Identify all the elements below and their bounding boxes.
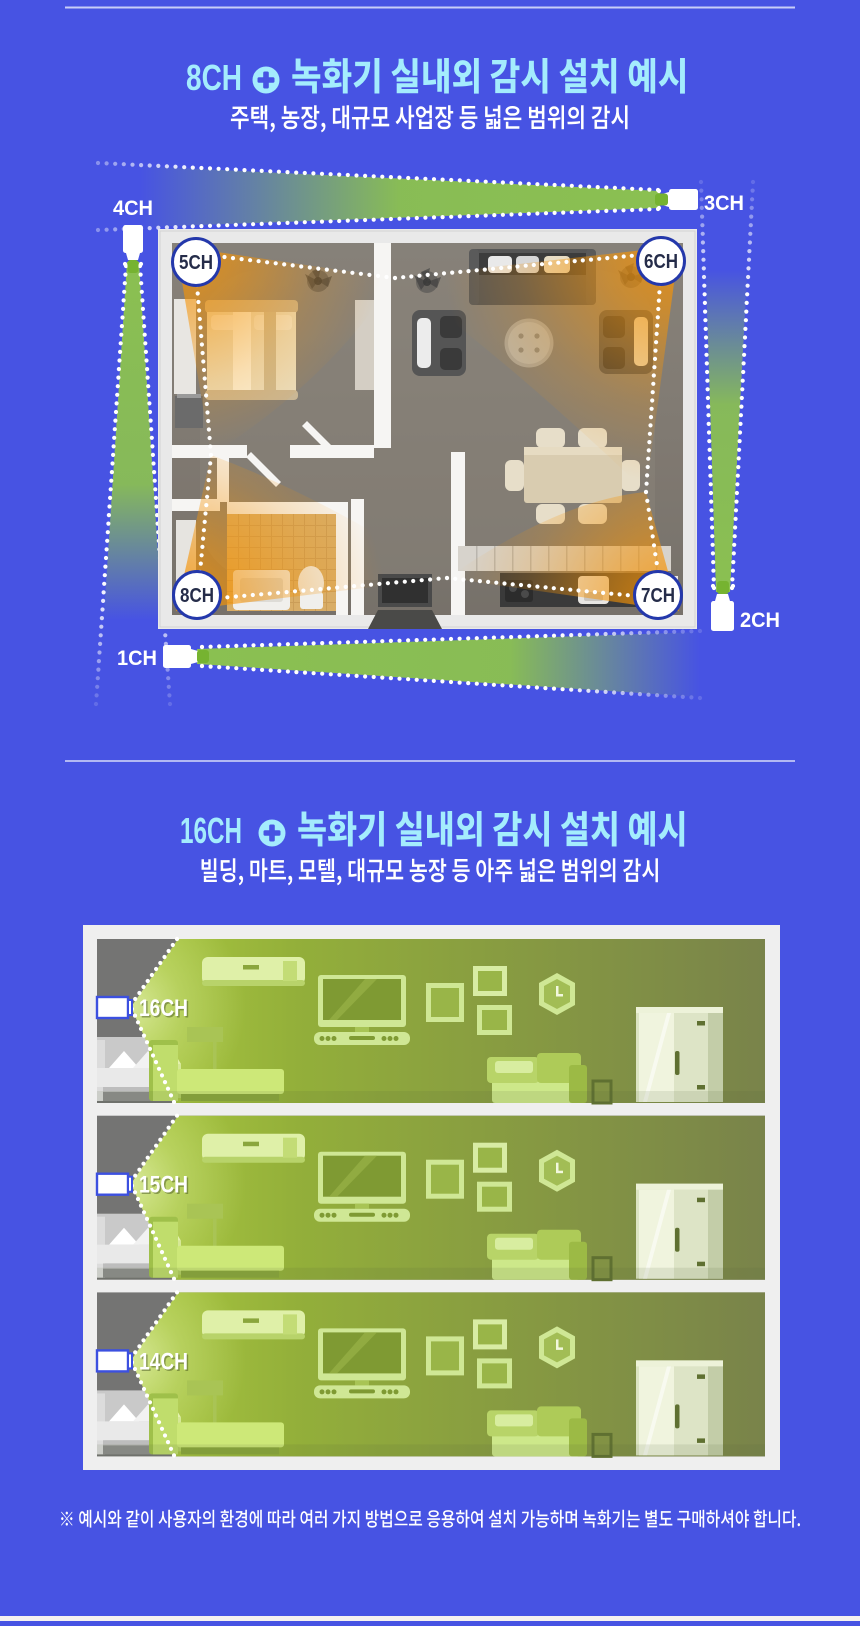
svg-text:14CH: 14CH [139,1348,188,1375]
svg-text:15CH: 15CH [139,1172,188,1199]
svg-text:16CH: 16CH [180,810,242,851]
svg-text:7CH: 7CH [641,585,675,607]
svg-text:6CH: 6CH [644,251,678,273]
svg-text:5CH: 5CH [179,252,213,274]
svg-text:4CH: 4CH [113,197,153,220]
svg-text:1CH: 1CH [117,647,157,670]
svg-text:16CH: 16CH [139,995,188,1022]
svg-text:3CH: 3CH [704,192,744,215]
svg-text:8CH: 8CH [180,585,214,607]
svg-text:8CH: 8CH [186,57,242,98]
svg-text:2CH: 2CH [740,609,780,632]
